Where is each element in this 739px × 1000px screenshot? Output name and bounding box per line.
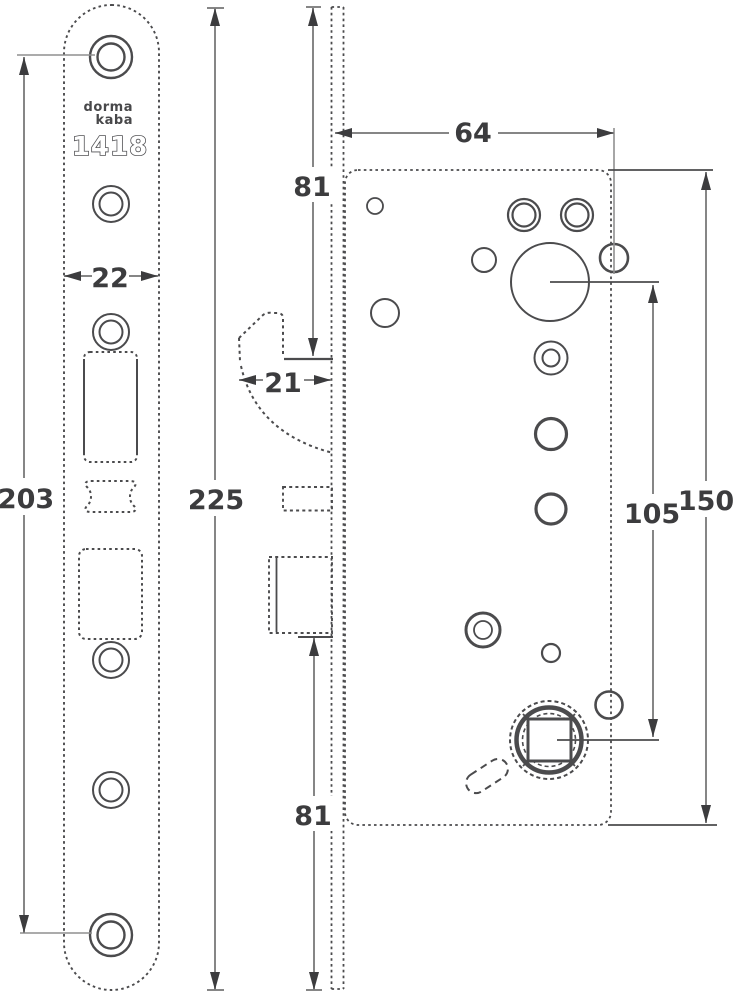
deadbolt [269, 557, 332, 633]
dimension-150-label: 150 [678, 486, 734, 517]
dimension-21-label: 21 [264, 368, 302, 399]
case-thick-hole-2 [536, 494, 566, 524]
arrow-down-icon [701, 805, 711, 823]
arrow-down-icon [648, 719, 658, 737]
arrow-up-icon [19, 57, 29, 75]
faceplate-hole-5 [93, 772, 129, 808]
dimension-81-top: 81 [293, 7, 333, 356]
faceplate: dorma kaba 1418 [64, 5, 159, 990]
edge-fixing-hole-bottom [596, 692, 623, 719]
arrow-down-icon [19, 915, 29, 933]
arrow-right-icon [314, 375, 331, 385]
case-hole-small-top-left [367, 198, 383, 214]
faceplate-screw-hole-top [90, 36, 132, 78]
dimension-64-label: 64 [454, 118, 492, 149]
dimension-225: 225 [188, 8, 244, 990]
faceplate-hole-4 [93, 642, 129, 678]
faceplate-deadbolt-cutout [79, 549, 142, 639]
dimension-203: 203 [0, 55, 95, 933]
faceplate-latch-cutout [84, 352, 137, 462]
case-hole-left [371, 299, 399, 327]
case-hole-small-low [542, 644, 560, 662]
case-screw-post-2 [561, 199, 593, 231]
case-screw-post-1 [508, 199, 540, 231]
case-ring-hole-2 [466, 613, 500, 647]
dimension-203-label: 203 [0, 484, 54, 515]
arrow-down-icon [309, 972, 319, 990]
latch-head-outline [239, 313, 283, 356]
technical-drawing-mortise-lock: dorma kaba 1418 203 22 225 [0, 0, 739, 1000]
arrow-left-icon [239, 375, 256, 385]
faceplate-hole-2 [93, 186, 129, 222]
dimension-21: 21 [239, 363, 331, 399]
dimension-225-label: 225 [188, 485, 244, 516]
arrow-up-icon [309, 638, 319, 656]
arrow-up-icon [308, 8, 318, 26]
auxiliary-bolt [283, 487, 332, 511]
dimension-81-bottom-label: 81 [294, 801, 332, 832]
arrow-up-icon [648, 285, 658, 303]
arrow-up-icon [210, 8, 220, 26]
faceplate-screw-hole-bottom [90, 914, 132, 956]
dimension-22-label: 22 [91, 263, 129, 294]
faceplate-auxiliary-cutout [85, 481, 135, 512]
dimension-105: 105 [550, 282, 680, 740]
latch-tip-edge [239, 338, 240, 361]
dimension-81-bottom: 81 [294, 637, 334, 990]
stulp-edge-strip [332, 7, 344, 989]
brand-logo-line2: kaba [96, 113, 134, 128]
case-ring-hole-1 [535, 342, 568, 375]
model-number: 1418 [72, 132, 148, 162]
faceplate-hole-3 [93, 314, 129, 350]
arrow-down-icon [308, 338, 318, 356]
drawing-canvas: dorma kaba 1418 203 22 225 [0, 0, 739, 1000]
dimension-105-label: 105 [624, 499, 680, 530]
arrow-down-icon [210, 972, 220, 990]
dimension-81-top-label: 81 [293, 172, 331, 203]
lock-case [345, 170, 628, 825]
arrow-up-icon [701, 172, 711, 190]
dimension-22: 22 [64, 258, 158, 294]
case-thick-hole-1 [536, 419, 567, 450]
arrow-right-icon [141, 271, 158, 281]
case-hole-mid [472, 248, 496, 272]
arrow-left-icon [64, 271, 81, 281]
arrow-right-icon [597, 128, 614, 138]
oblong-slot [462, 755, 511, 797]
